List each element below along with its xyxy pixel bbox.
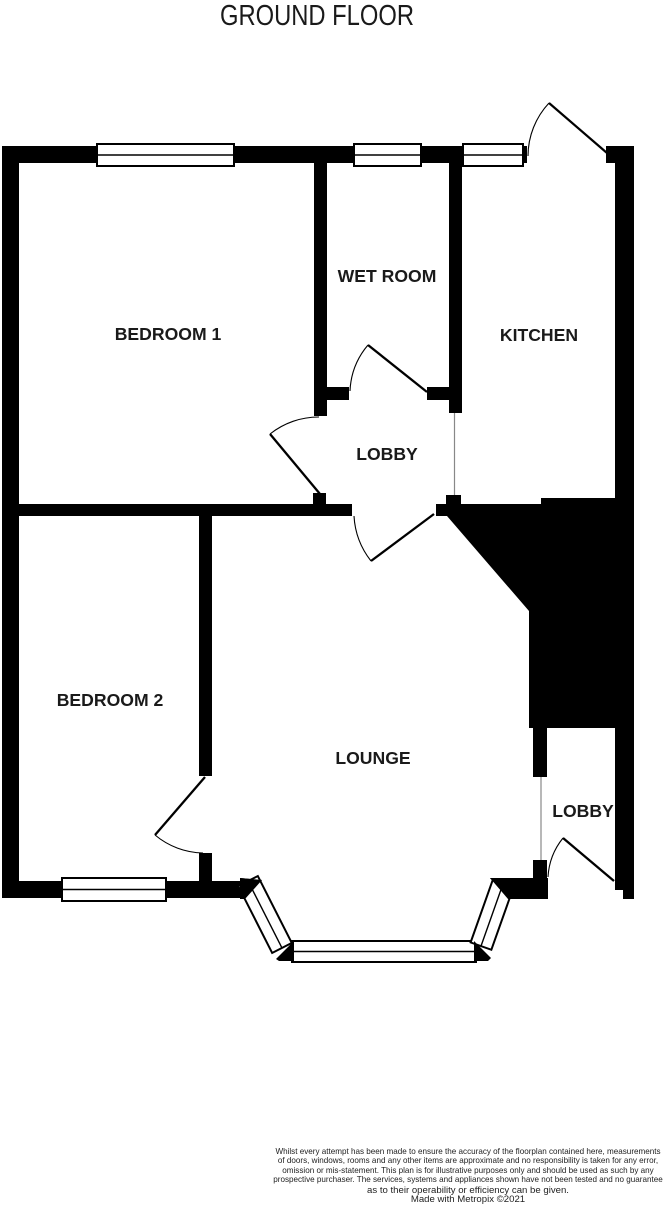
svg-text:WET ROOM: WET ROOM — [338, 266, 437, 286]
svg-text:LOBBY: LOBBY — [552, 801, 614, 821]
svg-text:BEDROOM 1: BEDROOM 1 — [115, 324, 222, 344]
svg-text:LOUNGE: LOUNGE — [335, 748, 411, 768]
svg-text:KITCHEN: KITCHEN — [500, 325, 578, 345]
svg-text:GROUND FLOOR: GROUND FLOOR — [220, 0, 414, 32]
svg-text:LOBBY: LOBBY — [356, 444, 418, 464]
svg-text:BEDROOM 2: BEDROOM 2 — [57, 690, 164, 710]
